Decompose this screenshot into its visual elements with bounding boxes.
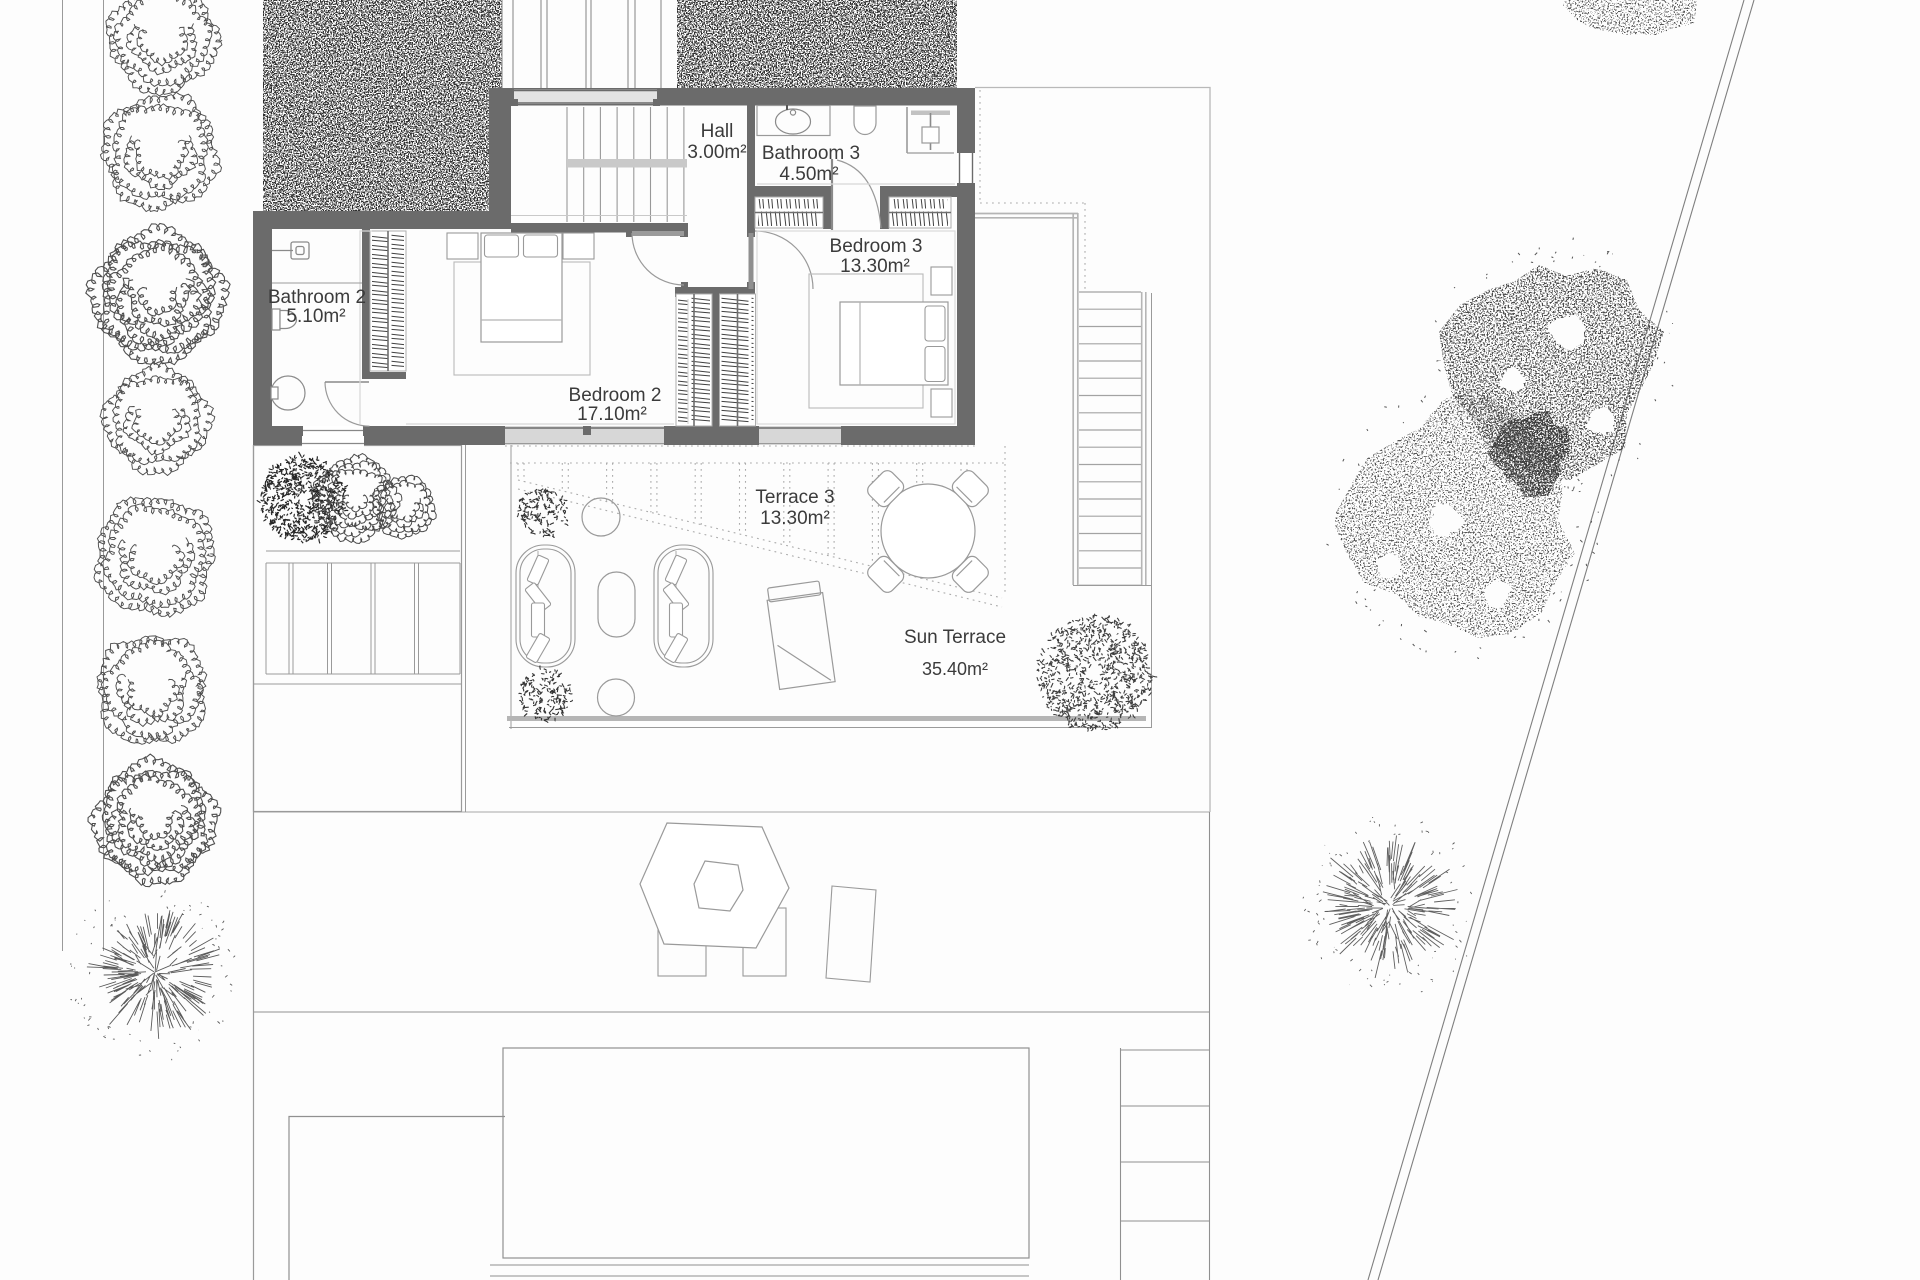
svg-text:13.30m²: 13.30m² [760, 508, 830, 529]
svg-text:Bedroom 3: Bedroom 3 [830, 236, 923, 257]
svg-text:5.10m²: 5.10m² [286, 306, 345, 327]
svg-text:Bathroom 3: Bathroom 3 [762, 143, 860, 164]
svg-text:17.10m²: 17.10m² [577, 404, 647, 425]
svg-text:Sun Terrace: Sun Terrace [904, 627, 1006, 648]
svg-text:35.40m²: 35.40m² [922, 659, 988, 679]
svg-text:Bedroom 2: Bedroom 2 [569, 385, 662, 406]
svg-text:13.30m²: 13.30m² [840, 256, 910, 277]
svg-text:Terrace 3: Terrace 3 [755, 487, 834, 508]
svg-text:3.00m²: 3.00m² [687, 142, 746, 163]
svg-text:4.50m²: 4.50m² [779, 164, 838, 185]
svg-text:Bathroom 2: Bathroom 2 [268, 287, 366, 308]
svg-text:Hall: Hall [701, 121, 734, 142]
